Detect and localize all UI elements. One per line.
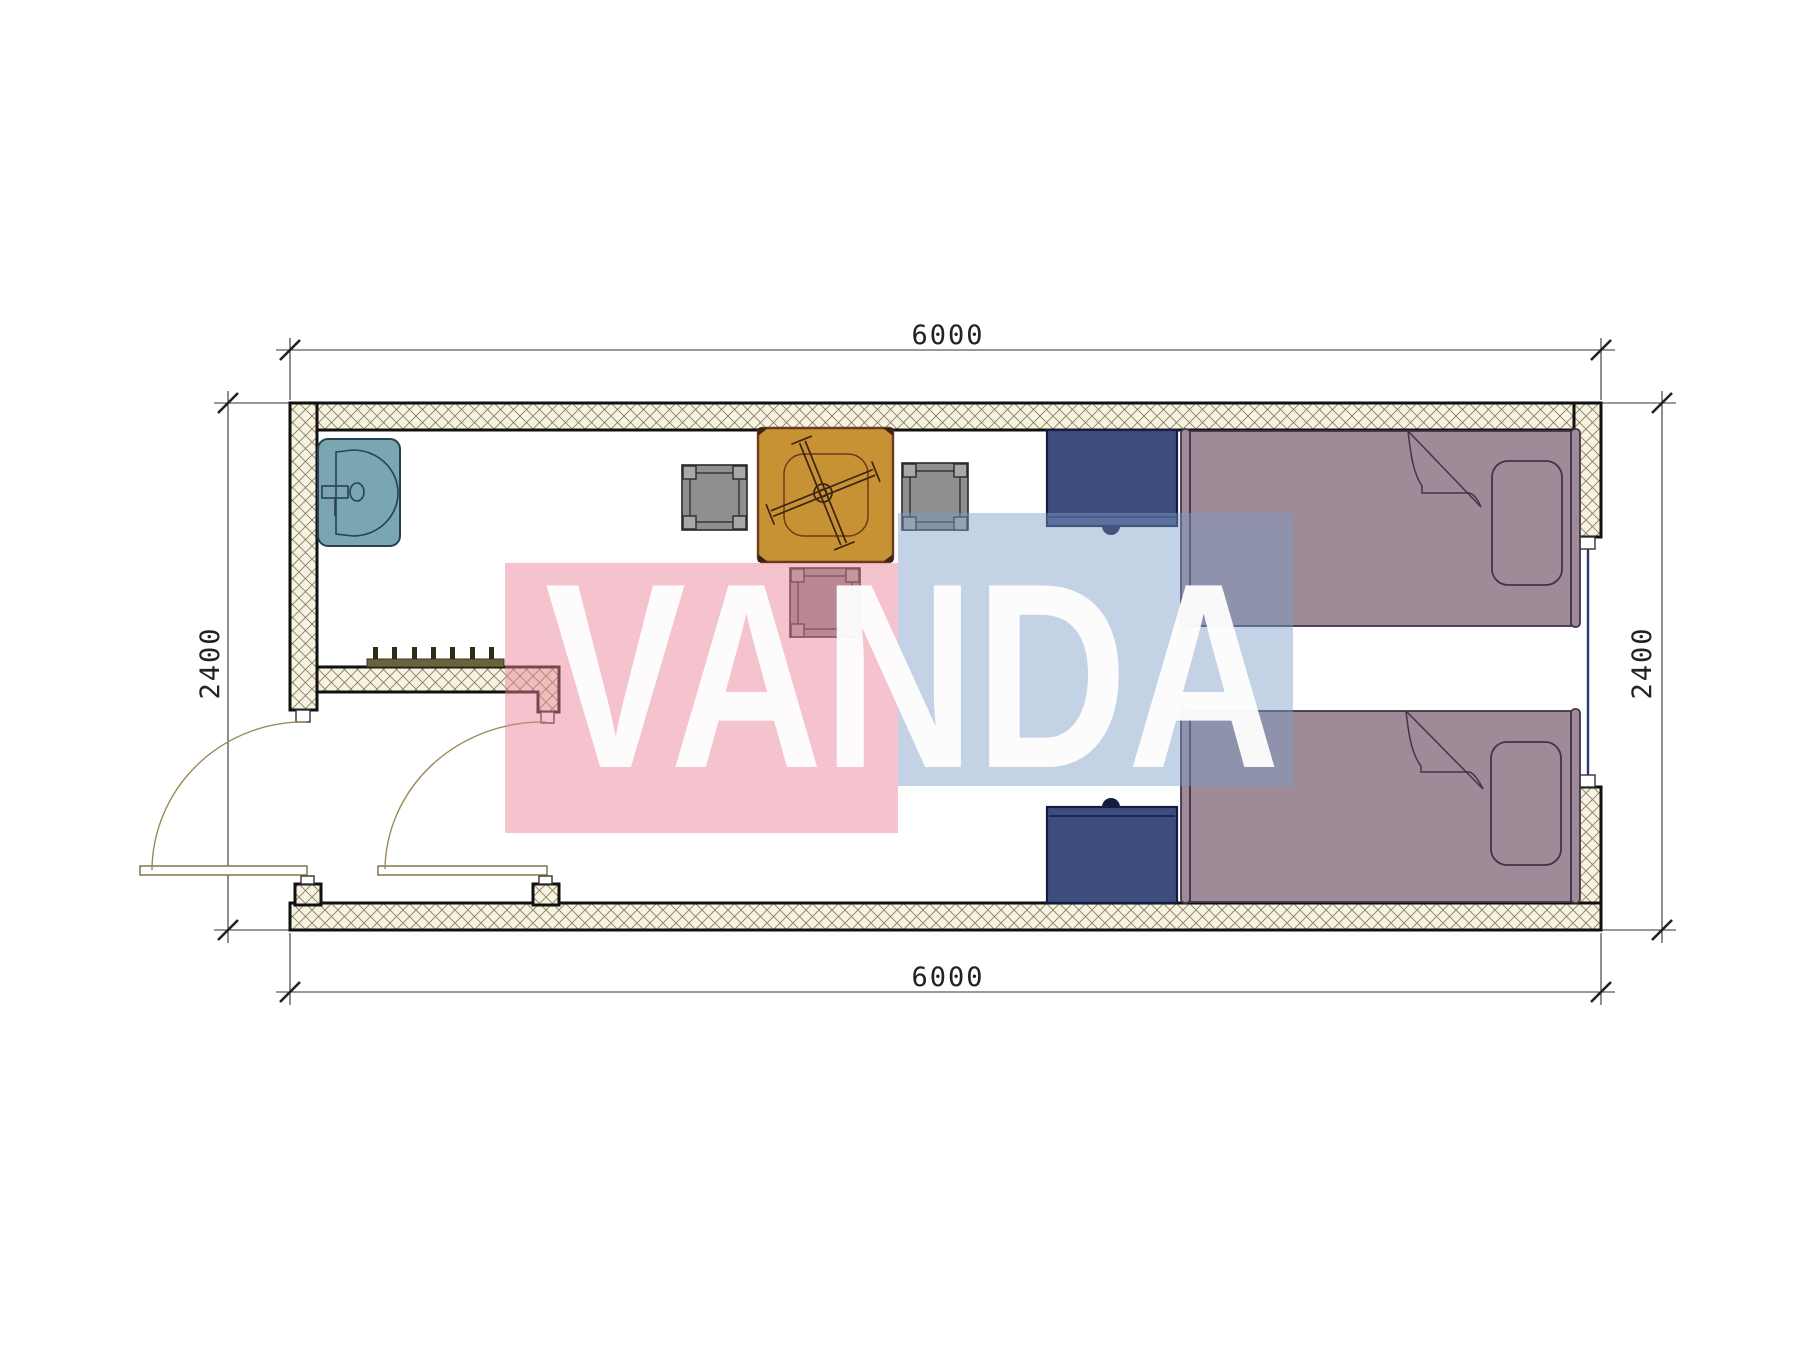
watermark: VANDA	[505, 513, 1293, 833]
dimension-top: 6000	[276, 320, 1615, 400]
door-jamb	[539, 876, 552, 884]
wall-bottom	[290, 903, 1601, 930]
dim-label-right: 2400	[1627, 626, 1658, 699]
wall-left	[290, 403, 317, 710]
floor-plan-drawing: 6000 6000 2400 2400	[0, 0, 1800, 1350]
wall-top	[290, 403, 1601, 430]
coat-hooks-icon	[367, 647, 504, 667]
door-post-right	[533, 884, 559, 905]
dimension-left: 2400	[195, 391, 293, 943]
pillow-icon	[1492, 461, 1562, 585]
door-swing-icon	[140, 722, 307, 875]
doors	[140, 722, 547, 875]
dimension-right: 2400	[1598, 391, 1676, 943]
dimension-bottom: 6000	[276, 933, 1615, 1005]
dim-label-left: 2400	[195, 626, 226, 699]
bed-footboard	[1571, 709, 1580, 903]
dim-label-bottom: 6000	[911, 962, 984, 993]
door-post-left	[295, 884, 321, 905]
sink-icon	[318, 439, 400, 546]
watermark-text: VANDA	[545, 528, 1280, 823]
pillow-icon	[1491, 742, 1561, 865]
door-jamb	[296, 710, 310, 722]
floor-plan-page: 6000 6000 2400 2400	[0, 0, 1800, 1350]
dim-label-top: 6000	[911, 320, 984, 351]
door-jamb	[301, 876, 314, 884]
chair-icon	[682, 465, 747, 530]
bed-footboard	[1571, 429, 1580, 627]
